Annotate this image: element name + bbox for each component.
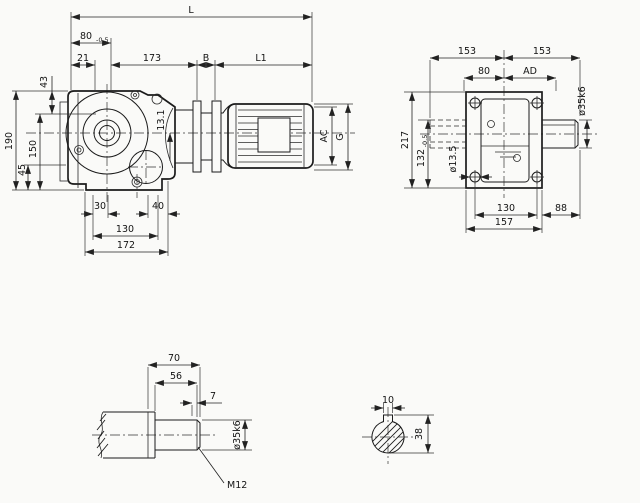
dim-label-88: 88 <box>555 203 567 214</box>
front-view-shaft-dimension: ø35k6 <box>577 86 592 148</box>
front-view-bolt-holes <box>468 96 544 184</box>
dim-label-B: B <box>203 53 210 64</box>
shaft-detail-view: 70 56 7 ø35k6 M12 <box>92 353 252 491</box>
dim-label-173: 173 <box>143 53 161 64</box>
dim-label-G: G <box>335 133 346 140</box>
m12-leader <box>198 447 224 483</box>
dim-label-13-1: 13.1 <box>156 109 167 130</box>
dim-label-AC: AC <box>319 129 330 142</box>
dim-label-45: 45 <box>17 164 28 176</box>
dim-label-157: 157 <box>495 217 513 228</box>
dim-label-130-front: 130 <box>497 203 515 214</box>
front-view-top-dimensions: 153 153 80 AD <box>430 46 580 118</box>
dim-label-130: 130 <box>116 224 134 235</box>
dim-label-shaft-dia: ø35k6 <box>577 86 588 115</box>
dim-label-80: 80 <box>80 31 92 42</box>
dim-label-153-right: 153 <box>533 46 551 57</box>
dim-label-150: 150 <box>28 140 39 158</box>
dim-label-80-tol: -0.5 <box>96 36 109 44</box>
motor-terminal-box <box>258 118 290 152</box>
motor-adapter-flange <box>175 101 234 172</box>
front-view: 153 153 80 AD 217 132 -0.5 ø13.5 ø35k6 <box>400 46 600 233</box>
dim-label-190: 190 <box>4 132 15 150</box>
shaft-detail-dimensions: 70 56 7 ø35k6 M12 <box>148 353 252 491</box>
dim-label-43: 43 <box>39 76 50 88</box>
motor-body <box>228 104 313 168</box>
dim-label-hole-dia: ø13.5 <box>448 146 459 173</box>
dim-label-L: L <box>188 5 194 16</box>
side-view-bottom-dimensions: 30 40 130 172 <box>81 181 180 256</box>
dim-label-30: 30 <box>94 201 106 212</box>
dim-label-217: 217 <box>400 131 411 149</box>
dim-label-38: 38 <box>414 428 425 440</box>
dim-label-7: 7 <box>210 391 216 402</box>
side-view-motor-dimensions: AC G <box>314 104 353 170</box>
dim-label-10: 10 <box>382 395 394 406</box>
front-view-centerlines <box>420 50 600 198</box>
dim-label-172: 172 <box>117 240 135 251</box>
side-view: L 80 -0.5 21 173 B L1 190 150 45 43 <box>4 5 355 256</box>
dim-label-153-left: 153 <box>458 46 476 57</box>
dim-label-M12: M12 <box>227 480 247 491</box>
dim-label-132-tol: -0.5 <box>421 135 429 148</box>
dim-label-70: 70 <box>168 353 180 364</box>
dim-label-AD: AD <box>523 66 537 77</box>
dim-label-80-front: 80 <box>478 66 490 77</box>
output-bore-circles <box>66 91 163 187</box>
dim-label-40: 40 <box>152 201 164 212</box>
gearbox-dimension-drawing: L 80 -0.5 21 173 B L1 190 150 45 43 <box>0 0 640 503</box>
shaft-section-view: 10 38 <box>342 395 444 472</box>
dim-label-56: 56 <box>170 371 182 382</box>
dim-label-L1: L1 <box>255 53 266 64</box>
dim-label-132: 132 <box>416 149 427 167</box>
drawing-canvas: L 80 -0.5 21 173 B L1 190 150 45 43 <box>0 0 640 503</box>
dim-label-shaft-detail-dia: ø35k6 <box>232 420 243 449</box>
front-view-bottom-dimensions: 130 88 157 <box>466 150 580 233</box>
dim-label-21: 21 <box>77 53 89 64</box>
